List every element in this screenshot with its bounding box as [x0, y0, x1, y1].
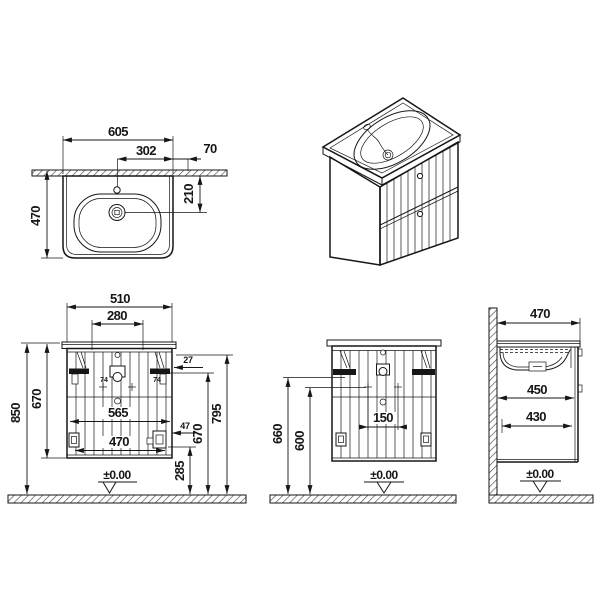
datum-triangle-rear — [377, 482, 391, 493]
technical-drawing: 605 302 70 470 210 — [0, 0, 600, 600]
dim-510: 510 — [110, 291, 130, 306]
drain-outer — [109, 205, 125, 221]
dim-280: 280 — [107, 308, 127, 323]
floor-hatch-mid — [270, 495, 456, 503]
floor-hatch-side — [489, 495, 593, 503]
top-cap — [327, 340, 441, 346]
dim-670-right: 670 — [190, 424, 205, 444]
dim-850: 850 — [8, 403, 23, 423]
view-isometric — [323, 98, 460, 265]
drain-inner — [112, 208, 122, 218]
countertop-side — [497, 341, 580, 347]
wall-hatch — [32, 170, 227, 176]
bowl-inner — [79, 199, 156, 248]
datum-triangle-front — [103, 482, 116, 493]
datum-front: ±0.00 — [103, 468, 131, 482]
dim-660: 660 — [270, 424, 285, 444]
drawer-knob-top — [417, 173, 422, 178]
dim-605: 605 — [108, 124, 128, 139]
view-rear: 660 600 150 ±0.00 — [270, 340, 456, 503]
dim-470-side: 470 — [530, 306, 550, 321]
datum-triangle-side — [533, 481, 547, 492]
dim-470-front: 470 — [109, 434, 129, 449]
bowl-outer — [74, 194, 161, 252]
floor-hatch-left — [8, 495, 246, 503]
hanger-right-rear — [412, 369, 435, 375]
drawing-canvas: 605 302 70 470 210 — [0, 0, 600, 600]
faucet-hole — [114, 187, 120, 193]
basin-section — [500, 347, 571, 371]
hanger-left-rear — [333, 369, 356, 375]
dim-600: 600 — [292, 431, 307, 451]
mount-marks-rear — [364, 383, 402, 391]
dim-74-right: 74 — [153, 377, 161, 384]
wall-hatch-side — [489, 308, 497, 495]
dim-285: 285 — [172, 461, 187, 481]
dim-210: 210 — [181, 184, 196, 204]
cabinet-front-panel — [380, 142, 458, 265]
mount-marks — [99, 383, 136, 391]
faucet-hole-3d — [363, 123, 372, 131]
drawer-divider2 — [380, 191, 458, 229]
dim-27: 27 — [183, 355, 193, 365]
dim-565: 565 — [108, 405, 128, 420]
dim-450: 450 — [527, 382, 547, 397]
drain-detail — [115, 210, 119, 214]
dim-302: 302 — [136, 143, 156, 158]
bowl-outer-3d — [344, 99, 440, 182]
drawer-knob-bottom — [417, 211, 422, 216]
view-side: 470 450 430 ±0.00 — [489, 306, 593, 503]
view-basin-top: 605 302 70 470 210 — [28, 124, 227, 258]
datum-side: ±0.00 — [526, 467, 554, 481]
drawer-divider — [380, 187, 458, 225]
dim-150: 150 — [373, 410, 393, 425]
dim-795: 795 — [209, 404, 224, 424]
bowl-inner-3d — [353, 107, 431, 172]
dim-47: 47 — [180, 421, 190, 431]
hanger-left — [69, 369, 89, 375]
view-front: 510 280 850 670 565 470 27 47 74 74 670 … — [8, 291, 246, 503]
dim-670-left: 670 — [29, 389, 44, 409]
countertop-inner — [330, 103, 453, 173]
datum-rear: ±0.00 — [370, 468, 398, 482]
countertop — [62, 342, 176, 349]
countertop-edge-left — [323, 147, 382, 185]
dim-470-depth: 470 — [28, 206, 43, 226]
dim-430: 430 — [526, 409, 546, 424]
dim-74-left: 74 — [100, 377, 108, 384]
dim-70: 70 — [203, 141, 217, 156]
